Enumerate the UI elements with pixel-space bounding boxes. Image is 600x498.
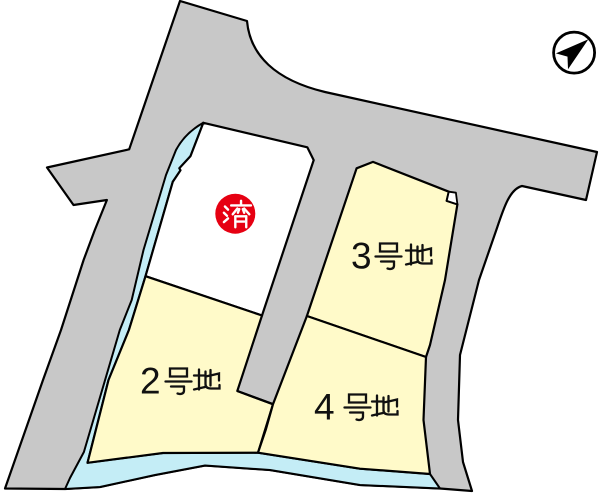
svg-text:3: 3 bbox=[351, 236, 372, 277]
svg-text:2: 2 bbox=[140, 361, 161, 402]
svg-text:4: 4 bbox=[314, 387, 335, 428]
